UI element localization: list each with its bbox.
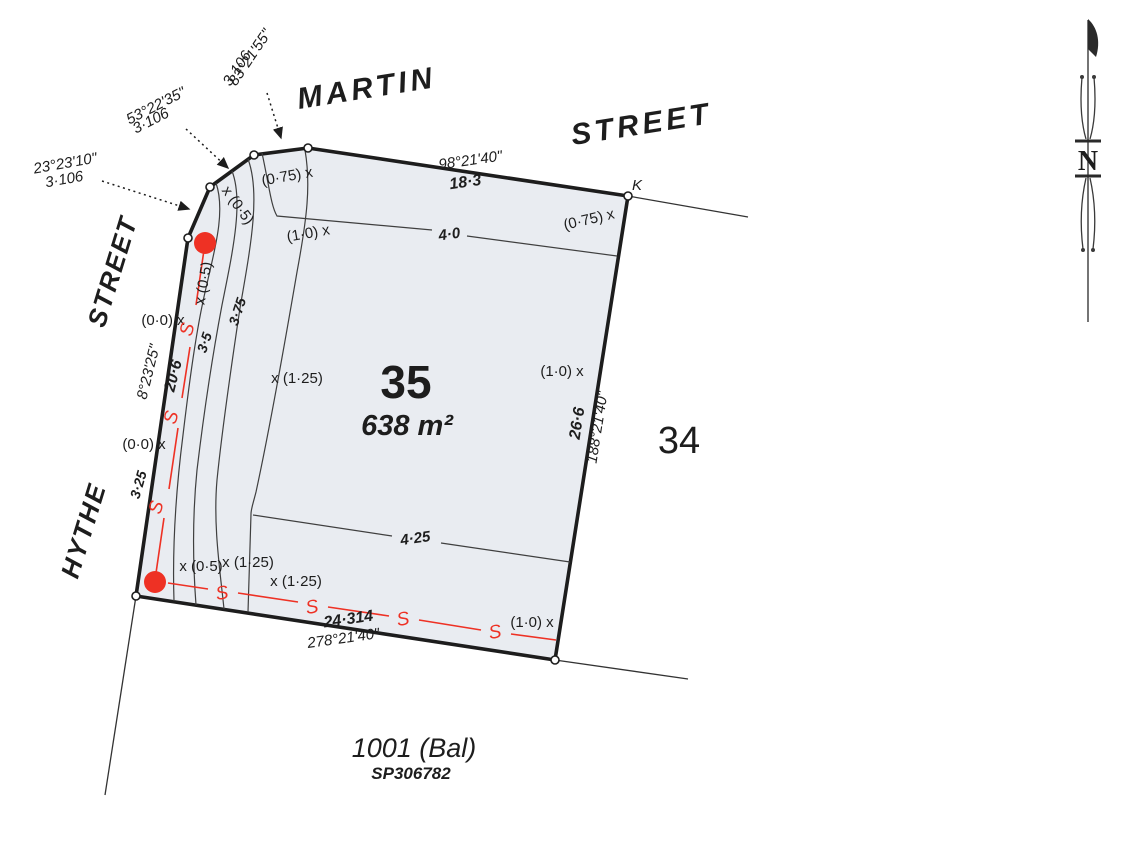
sewer-manhole-bottom	[144, 571, 166, 593]
spot-level: (1·0) x	[510, 614, 554, 631]
lot-area: 638 m²	[361, 410, 454, 442]
sewer-manhole-top	[194, 232, 216, 254]
street-name-hythe-street: STREET	[81, 212, 143, 330]
spot-level: (1·0) x	[540, 363, 584, 380]
lot-number: 35	[380, 356, 431, 408]
street-name-hythe: HYTHE	[55, 479, 112, 582]
spot-level: (0·0) x	[122, 436, 166, 453]
north-arrow-pennant	[1088, 19, 1098, 57]
extension-line-left-bottom	[105, 596, 136, 795]
survey-plan-canvas: N MARTIN STREET STREET HYTHE 98°21'40" 1…	[0, 0, 1125, 843]
adjacent-lot-number: 34	[658, 420, 700, 462]
spot-level: x (1·25)	[271, 370, 323, 387]
north-label: N	[1078, 146, 1098, 177]
spot-level: x (1·25)	[270, 573, 322, 590]
contour-label-3-25: 3·25	[127, 469, 150, 501]
survey-plan-page: N MARTIN STREET STREET HYTHE 98°21'40" 1…	[0, 0, 1125, 843]
top-boundary-bearing: 98°21'40"	[437, 148, 504, 174]
extension-line-right-top	[628, 196, 748, 217]
balance-lot-label: 1001 (Bal)	[352, 733, 477, 763]
street-name-martin-street: STREET	[569, 97, 715, 152]
contour-label-4-0: 4·0	[436, 225, 461, 245]
extension-line-right-bottom	[555, 660, 688, 679]
plan-number-label: SP306782	[371, 764, 451, 783]
spot-level: x (1·25)	[222, 554, 274, 571]
corner-mark-k: K	[632, 177, 643, 194]
bottom-boundary-bearing: 278°21'40"	[305, 625, 381, 652]
left-boundary-bearing: 8°23'25"	[134, 342, 164, 401]
north-arrow: N	[1075, 19, 1101, 322]
spot-level: x (0·5)	[179, 558, 222, 575]
street-name-martin: MARTIN	[295, 61, 439, 116]
